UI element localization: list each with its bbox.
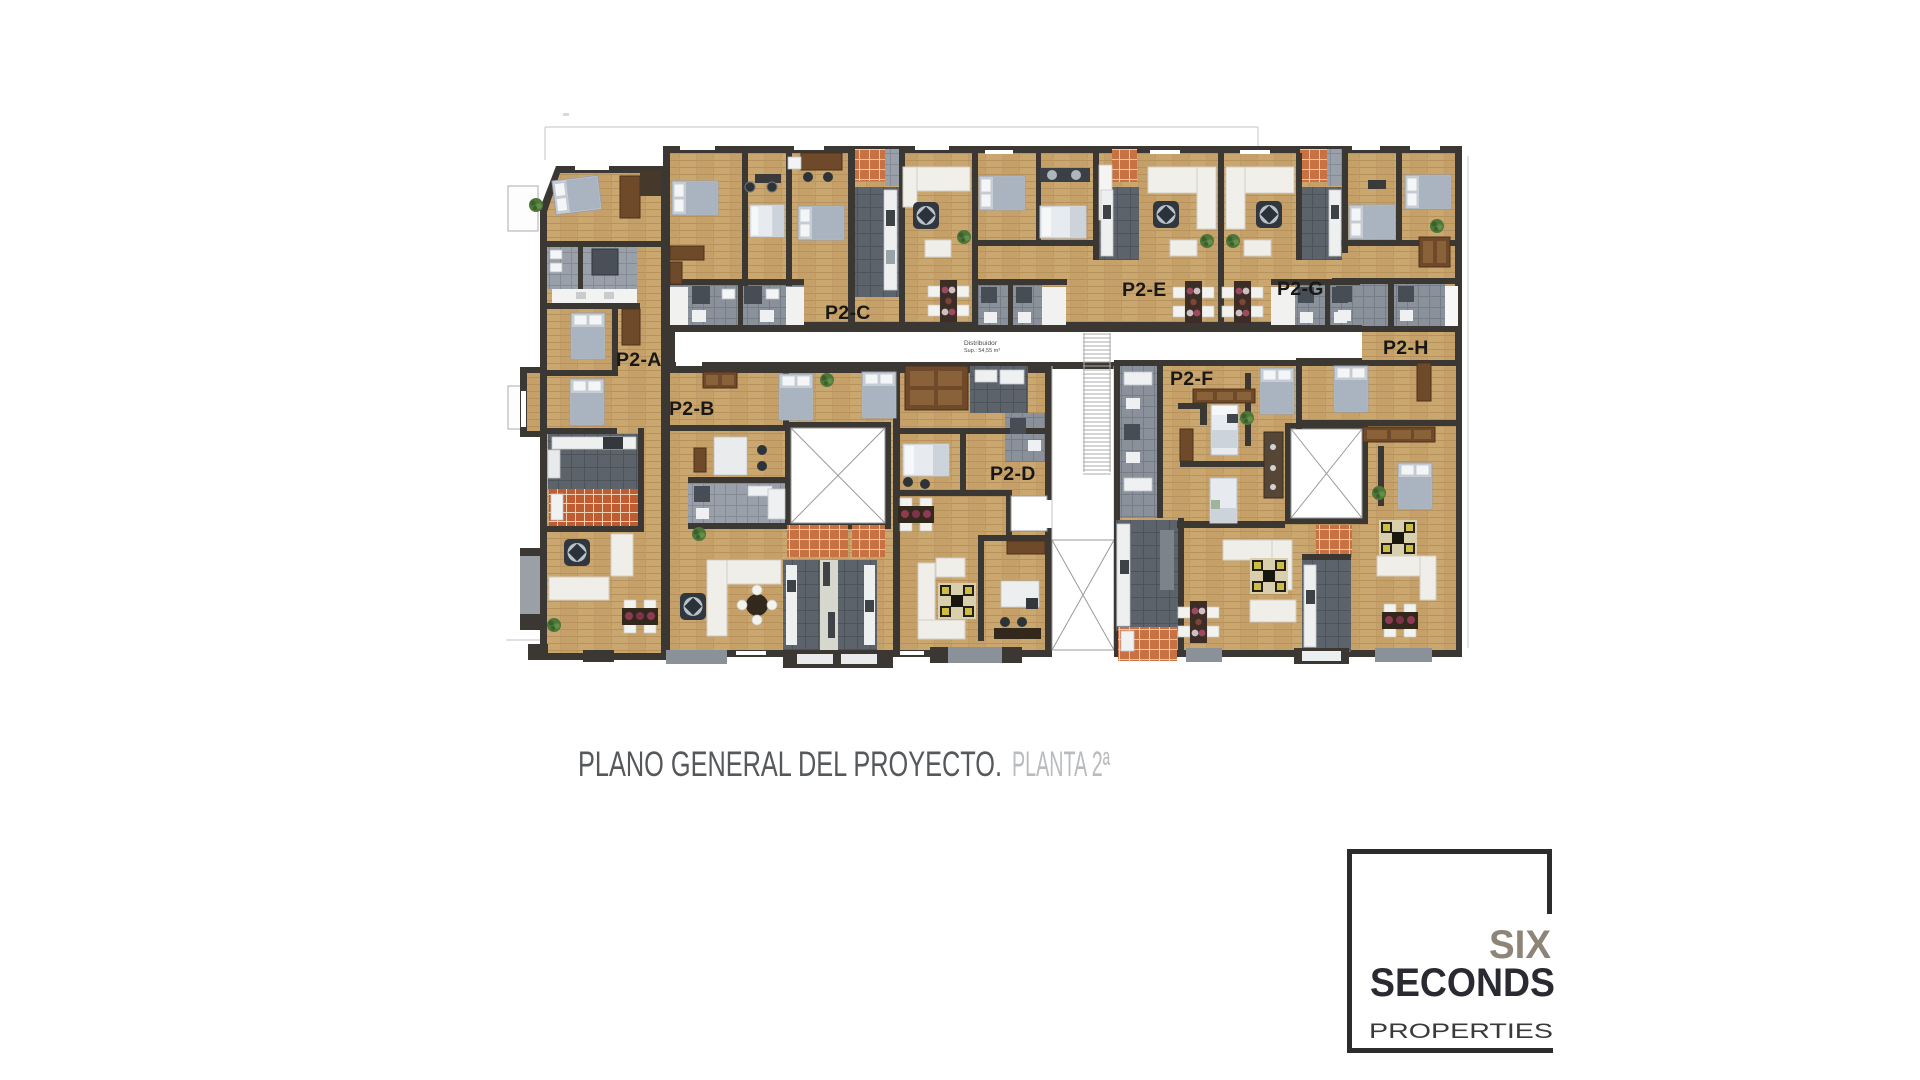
svg-text:P2-C: P2-C [825, 302, 871, 324]
svg-text:P2-D: P2-D [990, 463, 1036, 485]
svg-text:P2-B: P2-B [669, 398, 715, 420]
svg-text:SECONDS: SECONDS [1370, 961, 1555, 1005]
svg-text:Distribuidor: Distribuidor [964, 340, 998, 347]
svg-text:PROPERTIES: PROPERTIES [1369, 1020, 1553, 1043]
svg-text:P2-F: P2-F [1170, 368, 1213, 390]
svg-text:PLANTA 2ª: PLANTA 2ª [1012, 745, 1111, 784]
svg-text:P2-H: P2-H [1383, 337, 1429, 359]
svg-text:P2-G: P2-G [1277, 278, 1324, 300]
svg-text:P2-E: P2-E [1122, 279, 1167, 301]
svg-text:PLANO GENERAL DEL PROYECTO.: PLANO GENERAL DEL PROYECTO. [578, 745, 1002, 784]
svg-text:P2-A: P2-A [616, 349, 662, 371]
svg-text:Sup.: 54,55 m²: Sup.: 54,55 m² [964, 348, 1000, 354]
